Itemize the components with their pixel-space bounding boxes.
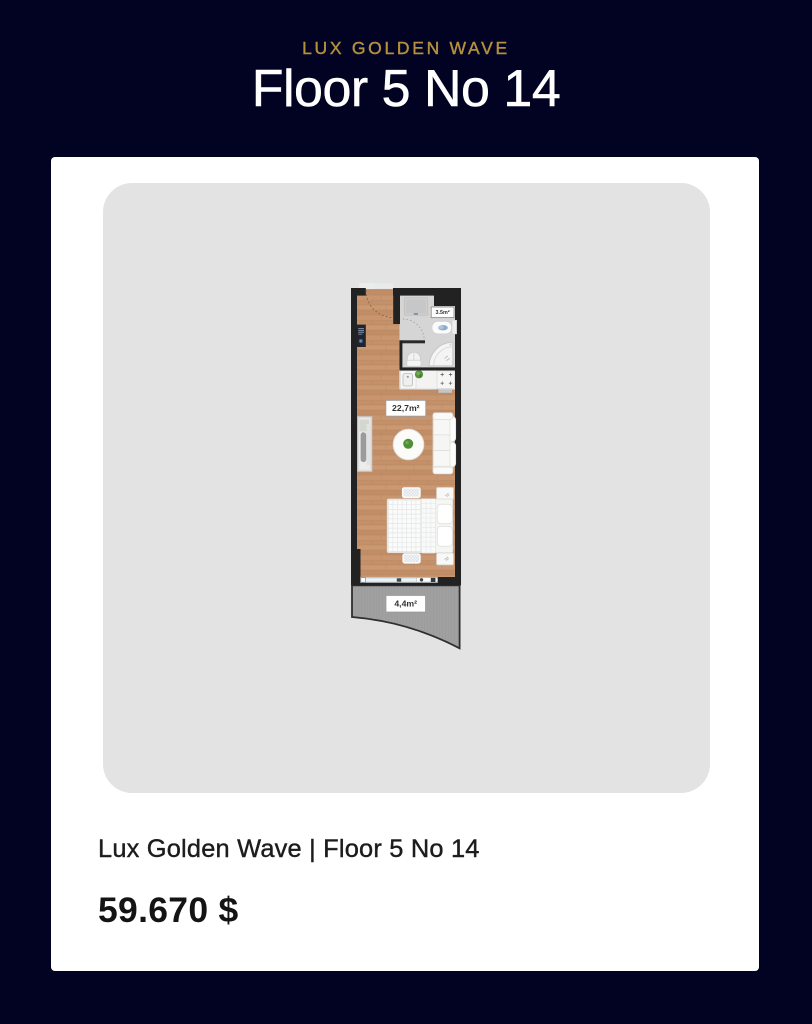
svg-text:4,4m²: 4,4m² bbox=[394, 599, 417, 609]
svg-text:3.5m²: 3.5m² bbox=[436, 310, 450, 316]
svg-text:22,7m²: 22,7m² bbox=[392, 403, 420, 413]
